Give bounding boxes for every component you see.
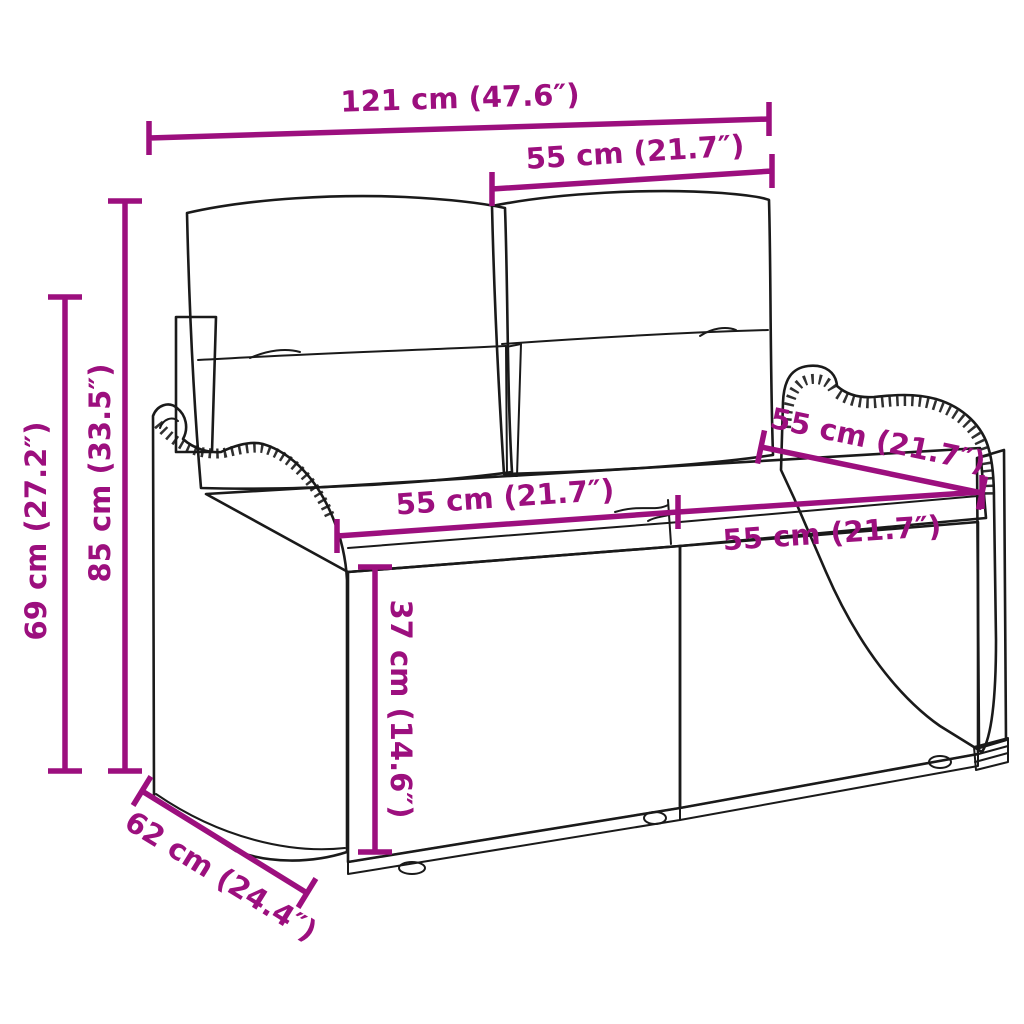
product-dimension-diagram: 121 cm (47.6″) 55 cm (21.7″) 85 cm (33.5… [0,0,1024,1024]
dim-back-height-label: 69 cm (27.2″) [19,422,53,641]
dim-seat-right-width: 55 cm (21.7″) [678,475,982,557]
dim-back-height: 69 cm (27.2″) [19,297,82,771]
dim-base-height-label: 37 cm (14.6″) [384,600,418,819]
back-cushion-left [187,196,512,489]
dim-total-height: 85 cm (33.5″) [83,201,142,771]
armrest-left [153,405,347,861]
dim-overall-width-label: 121 cm (47.6″) [340,77,580,118]
dim-bottom-depth-label: 62 cm (24.4″) [119,804,323,948]
dim-back-cushion-width-label: 55 cm (21.7″) [525,128,746,176]
bench-diagram-svg: 121 cm (47.6″) 55 cm (21.7″) 85 cm (33.5… [0,0,1024,1024]
base-right [680,522,978,820]
dim-bottom-depth: 62 cm (24.4″) [119,777,323,948]
dim-total-height-label: 85 cm (33.5″) [83,364,117,583]
back-cushion-right [492,191,773,474]
dim-base-height: 37 cm (14.6″) [358,567,418,852]
